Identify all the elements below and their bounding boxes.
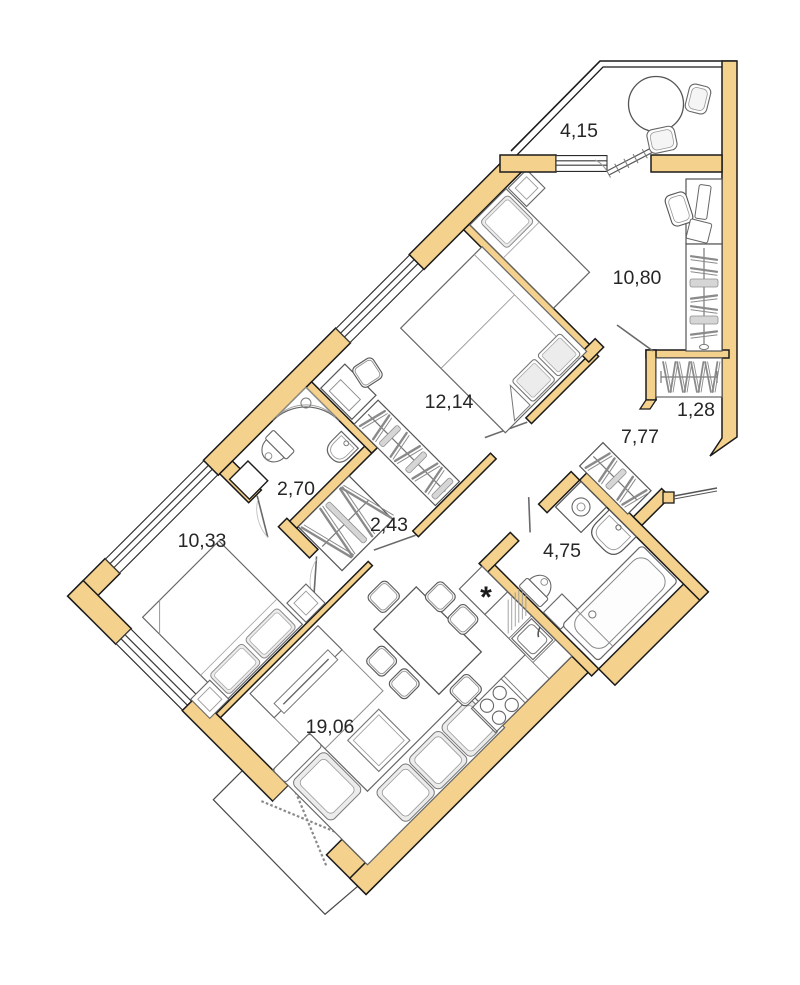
svg-text:2,70: 2,70 xyxy=(277,478,315,500)
svg-text:10,80: 10,80 xyxy=(613,267,662,289)
svg-text:10,33: 10,33 xyxy=(178,530,227,552)
svg-text:12,14: 12,14 xyxy=(425,391,474,413)
svg-text:*: * xyxy=(480,581,492,614)
svg-text:4,75: 4,75 xyxy=(543,540,581,562)
svg-text:7,77: 7,77 xyxy=(621,426,659,448)
svg-text:19,06: 19,06 xyxy=(306,716,355,738)
svg-text:4,15: 4,15 xyxy=(560,120,598,142)
svg-text:2,43: 2,43 xyxy=(370,514,408,536)
svg-text:1,28: 1,28 xyxy=(677,399,715,421)
